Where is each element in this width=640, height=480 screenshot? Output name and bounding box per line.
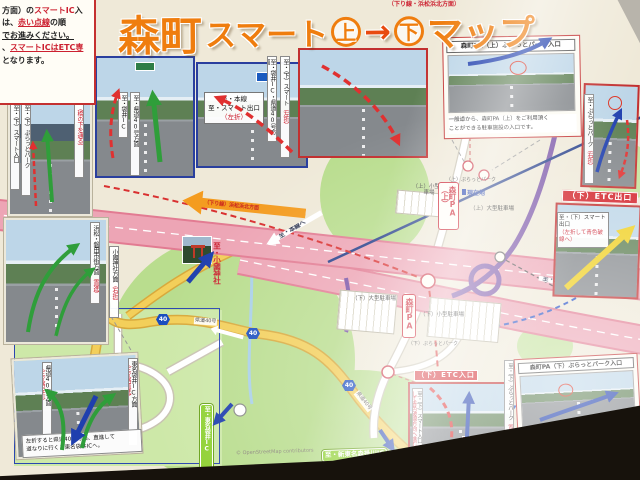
notice-box: 方面）のスマートIC入 は、赤い点線の順 でお進みください。 、スマートICはE… xyxy=(0,0,96,105)
label-okuni: 至・小國神社 xyxy=(213,242,221,316)
title-map: マップ xyxy=(427,4,535,57)
strip-route40: 至・県道40号方面 xyxy=(130,92,140,176)
title-circle-up: 上 xyxy=(331,16,361,46)
highlight-circle xyxy=(608,96,622,110)
strip-down-smart: 至・（下）スマート（左折） xyxy=(280,56,290,158)
strip-down-platpark: 至・（下）ぷらっとパーク xyxy=(21,102,31,196)
strip-down-smart-entrance: 至・（下）スマート入口 xyxy=(10,102,20,190)
banner-etc-exit: （下）ETC出口 xyxy=(562,190,638,205)
shrine-photo xyxy=(182,236,212,264)
road-40-name: 県道40号 xyxy=(354,390,374,412)
pa-up-box: 森町PA（上） xyxy=(438,182,459,230)
torii-post xyxy=(201,248,203,258)
current-location-icon xyxy=(462,189,466,195)
poster-photo: （上）小型駐車場 （上）大型駐車場 （上）ぷらっとパーク 森町PA（上） 現在地… xyxy=(0,0,640,480)
strip-fukuroi-route40: 至・袋井IC・県道40号方面 xyxy=(267,56,277,142)
pa-box: 森町PA xyxy=(402,294,416,338)
label-mainline: 至・本線 至・スマート出口 （左折） xyxy=(204,92,264,124)
notice-line: 、スマートICはETC専 xyxy=(2,42,91,54)
photo-down-exit-ramp xyxy=(298,48,428,158)
inset-caption: 一般道から、森町PA（上）をご利用頂くことができる駐車施設の入口です。 xyxy=(448,114,576,134)
title-arrow: → xyxy=(364,12,391,50)
route-40-shield: 40 xyxy=(246,328,260,339)
label-lot-down-large: （下）大型駐車場 xyxy=(352,296,396,302)
notice-line: 方面）のスマートIC入 xyxy=(2,5,91,17)
strip-platpark: 至・ぷらっとパーク（右折） xyxy=(584,94,594,184)
banner-etc-entrance: （下）ETC入口 xyxy=(414,370,478,381)
label-lot-up-large: （上）大型駐車場 xyxy=(470,206,514,212)
parking-lot-down-right xyxy=(426,297,501,343)
title-morimachi: 森町 xyxy=(118,2,203,64)
shintomei-direction-arrow: （下り線）浜松浜北方面 xyxy=(181,189,307,226)
label-lot-down-small: （下）小型駐車場 xyxy=(420,312,464,318)
osm-credit: © OpenStreetMap contributors xyxy=(236,449,314,457)
label-platpark-down: （下）ぷらっとパーク xyxy=(408,342,458,348)
title-smart: スマート xyxy=(205,9,328,55)
notice-line: でお進みください。 xyxy=(2,30,91,42)
current-location-label: 現在地 xyxy=(462,189,485,198)
notice-line: となります。 xyxy=(2,55,91,67)
photo-up-entrance xyxy=(95,56,195,178)
strip-route40-fork: 県道40号方面（三叉路左折） xyxy=(42,362,52,444)
strip-hamamatsu: 浜松・磐田市街方面（直進） xyxy=(90,222,100,304)
torii-post xyxy=(193,248,195,258)
route-40-shield: 40 xyxy=(342,380,356,391)
poster-title: 森町 スマート 上 → 下 マップ xyxy=(118,0,535,64)
strip-under-bridge-note: （橋の下を通る） xyxy=(74,102,84,178)
strip-okuni: 小國神社方面（右折） xyxy=(109,246,119,318)
label-etc-exit: 至・（下）スマート出口 （左折して青色破線へ） xyxy=(557,212,609,248)
notice-line: は、赤い点線の順 xyxy=(2,17,91,29)
title-circle-down: 下 xyxy=(394,16,424,46)
strip-fukuroi-ic: 至・袋井IC xyxy=(118,92,128,138)
label-tomei-fukuroi: 至・東名袋井IC xyxy=(200,404,213,470)
